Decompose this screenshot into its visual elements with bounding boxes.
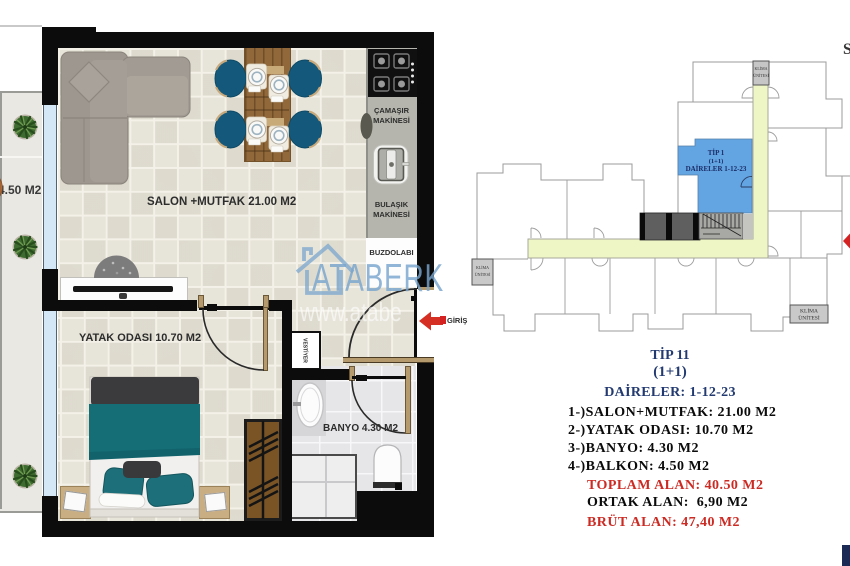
svg-text:ÜNİTESİ: ÜNİTESİ — [753, 73, 769, 78]
svg-text:(1+1): (1+1) — [709, 158, 724, 165]
svg-text:KLİMA: KLİMA — [754, 66, 767, 71]
svg-text:ÜNİTESİ: ÜNİTESİ — [798, 315, 820, 322]
svg-text:KLİMA: KLİMA — [800, 308, 818, 315]
svg-text:ÜNİTESİ: ÜNİTESİ — [475, 272, 491, 277]
svg-text:KLİMA: KLİMA — [476, 265, 489, 270]
svg-text:DAİRELER 1-12-23: DAİRELER 1-12-23 — [686, 165, 747, 173]
svg-text:TİP 1: TİP 1 — [708, 149, 725, 157]
svg-text:ATABERK: ATABERK — [312, 257, 444, 301]
svg-text:www.atabe: www.atabe — [299, 298, 402, 327]
